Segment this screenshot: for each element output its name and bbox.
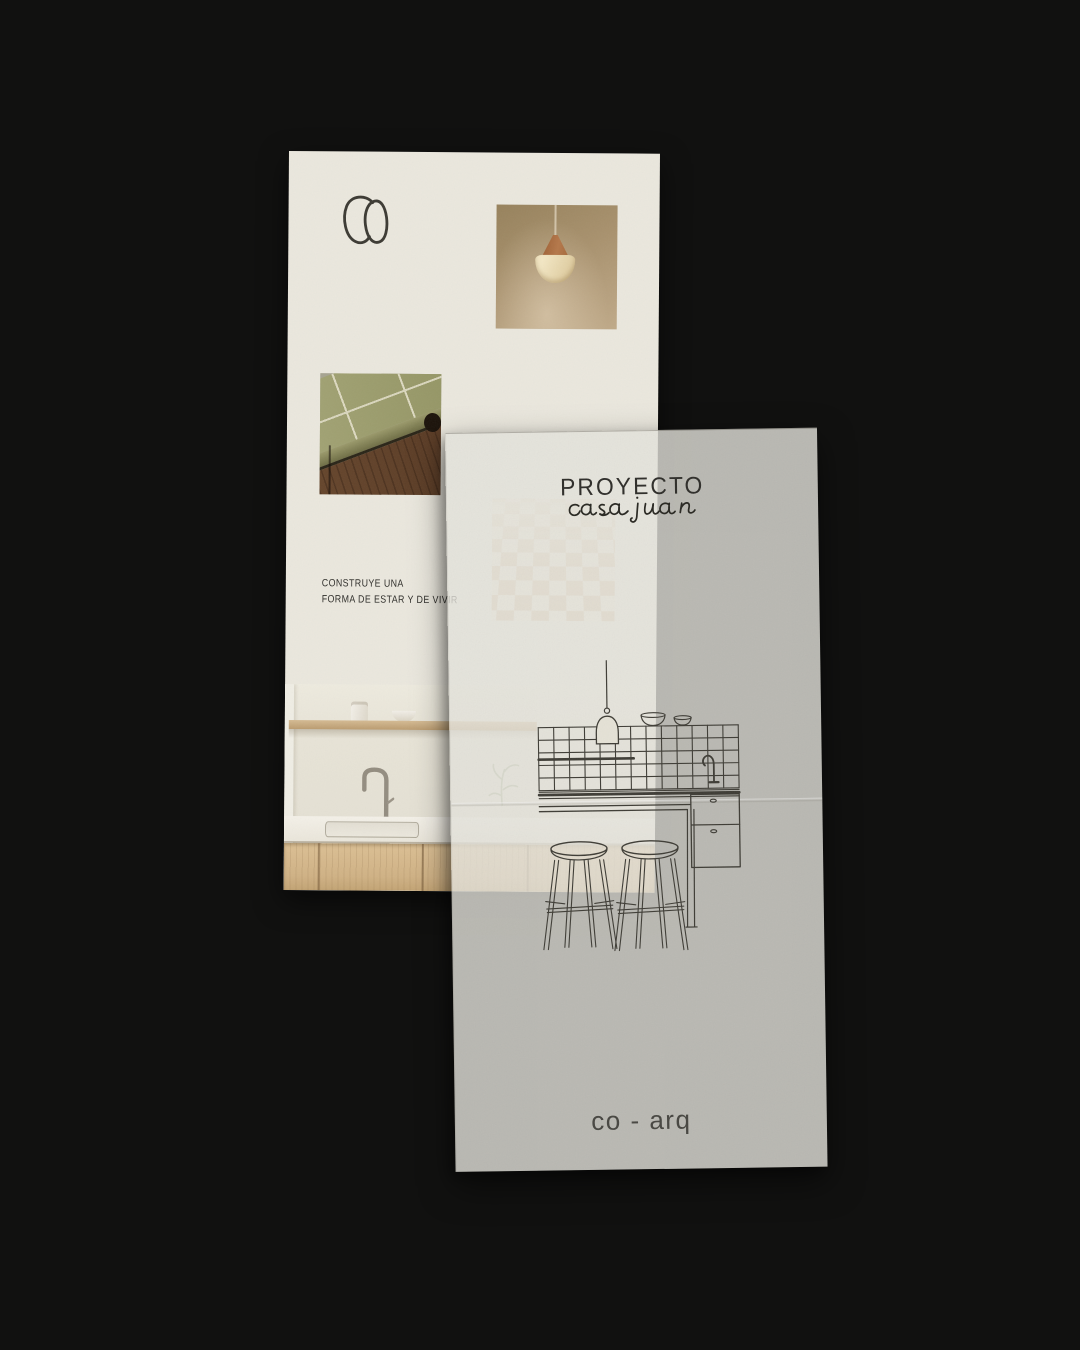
sink — [325, 821, 419, 838]
cabinet-seam — [318, 843, 320, 890]
drawer-cabinet-drawing — [691, 794, 741, 868]
bowls-drawing — [641, 712, 691, 726]
kitchen-line-drawing — [529, 651, 779, 971]
tagline-line-2: FORMA DE ESTAR Y DE VIVIR — [322, 591, 458, 608]
tile-grid-drawing — [538, 725, 739, 791]
co-logo-script-icon — [337, 191, 391, 249]
pendant-cord — [554, 205, 556, 236]
scene-background: CO — [0, 0, 1080, 1350]
coarq-footer-logo: co - arq — [456, 1103, 827, 1139]
tiled-counter-photo — [319, 373, 441, 495]
tagline: CONSTRUYE UNA FORMA DE ESTAR Y DE VIVIR — [322, 575, 458, 608]
finger-hole — [424, 413, 441, 432]
tagline-line-1: CONSTRUYE UNA — [322, 575, 458, 592]
pendant-lamp-photo — [496, 205, 618, 330]
counter-photo-plane — [319, 373, 441, 495]
cabinet-seam — [422, 844, 424, 891]
wood-seam — [328, 445, 330, 494]
bar-stool-drawing — [542, 841, 617, 949]
casa-juan-script-icon — [564, 486, 703, 528]
faucet-drawing — [703, 756, 719, 783]
co-logo: CO — [337, 191, 391, 249]
white-canister — [351, 701, 368, 721]
bar-stool-drawing — [613, 840, 688, 950]
tracing-paper-sheet: PROYECTO casa juan — [445, 428, 828, 1172]
casa-juan-script: casa juan — [564, 486, 703, 533]
pendant-lamp-drawing — [595, 661, 618, 744]
